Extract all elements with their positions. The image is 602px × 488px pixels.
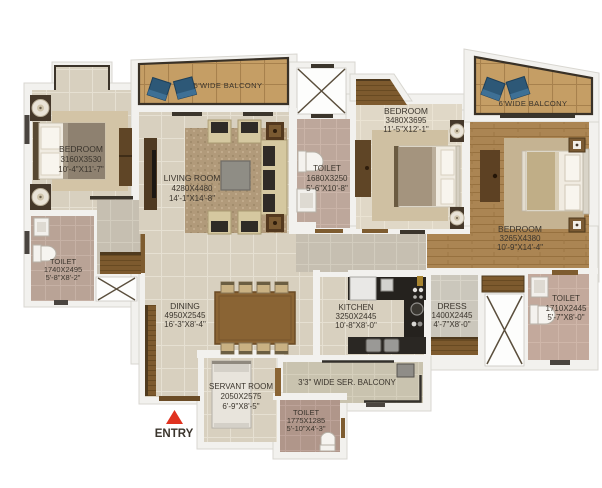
svg-text:1400X2445: 1400X2445	[432, 311, 473, 320]
svg-text:5'WIDE BALCONY: 5'WIDE BALCONY	[194, 81, 263, 90]
svg-text:BEDROOM: BEDROOM	[498, 224, 542, 234]
svg-text:LIVING ROOM: LIVING ROOM	[164, 173, 221, 183]
svg-text:BEDROOM: BEDROOM	[59, 144, 103, 154]
svg-text:TOILET: TOILET	[313, 164, 341, 173]
svg-text:SERVANT ROOM: SERVANT ROOM	[209, 382, 273, 391]
svg-text:10'-8"X8'-0": 10'-8"X8'-0"	[335, 321, 377, 330]
svg-text:3160X3530: 3160X3530	[61, 155, 102, 164]
svg-text:ENTRY: ENTRY	[155, 428, 194, 440]
svg-text:3'3" WIDE SER. BALCONY: 3'3" WIDE SER. BALCONY	[298, 378, 396, 387]
svg-text:3250X2445: 3250X2445	[336, 312, 377, 321]
svg-text:5'-6"X10'-8": 5'-6"X10'-8"	[306, 184, 348, 193]
svg-text:16'-3"X8'-4": 16'-3"X8'-4"	[164, 320, 206, 329]
svg-text:TOILET: TOILET	[552, 294, 580, 303]
svg-text:10'-9"X14'-4": 10'-9"X14'-4"	[497, 243, 543, 252]
svg-text:5'-8"X8'-2": 5'-8"X8'-2"	[46, 273, 81, 282]
svg-text:2050X2575: 2050X2575	[221, 392, 262, 401]
svg-text:10'-4"X11'-7": 10'-4"X11'-7"	[58, 165, 104, 174]
svg-text:1680X3250: 1680X3250	[307, 174, 348, 183]
svg-text:1710X2445: 1710X2445	[546, 304, 587, 313]
svg-text:DRESS: DRESS	[437, 301, 467, 311]
svg-text:5'-10"X4'-3": 5'-10"X4'-3"	[286, 424, 325, 433]
svg-text:4950X2545: 4950X2545	[165, 311, 206, 320]
svg-text:3265X4380: 3265X4380	[500, 234, 541, 243]
svg-text:4'-7"X8'-0": 4'-7"X8'-0"	[433, 320, 470, 329]
svg-text:11'-5"X12'-1": 11'-5"X12'-1"	[383, 125, 429, 134]
svg-text:6'-9"X8'-5": 6'-9"X8'-5"	[222, 402, 259, 411]
svg-text:3480X3695: 3480X3695	[386, 116, 427, 125]
svg-text:KITCHEN: KITCHEN	[338, 303, 373, 312]
svg-text:5'-7"X8'-0": 5'-7"X8'-0"	[547, 313, 584, 322]
svg-text:BEDROOM: BEDROOM	[384, 106, 428, 116]
svg-text:4280X4480: 4280X4480	[172, 184, 213, 193]
svg-text:14'-1"X14'-8": 14'-1"X14'-8"	[169, 194, 215, 203]
svg-text:DINING: DINING	[170, 301, 200, 311]
svg-text:6'WIDE BALCONY: 6'WIDE BALCONY	[499, 99, 568, 108]
